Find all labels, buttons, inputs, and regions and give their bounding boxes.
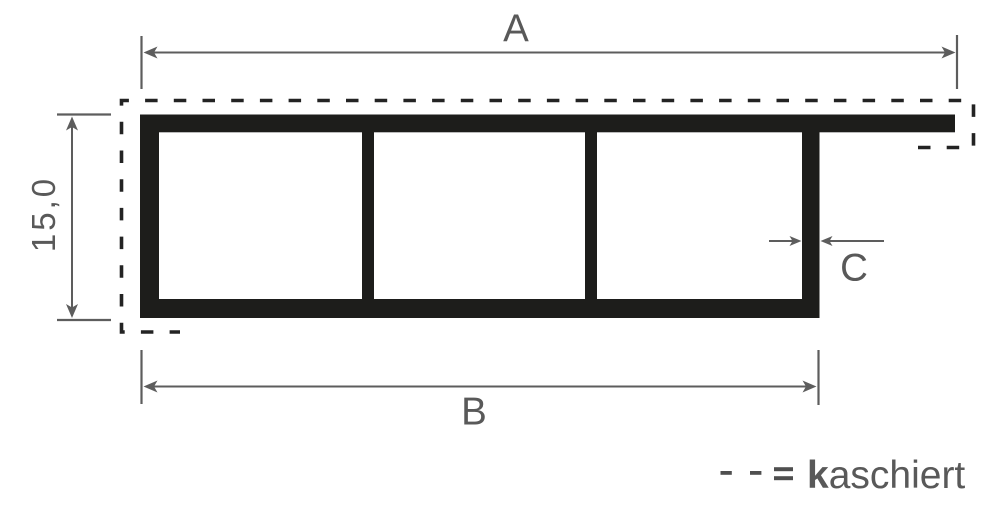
svg-text:kaschiert: kaschiert bbox=[807, 454, 965, 497]
svg-text:15,0: 15,0 bbox=[25, 176, 62, 252]
svg-text:B: B bbox=[461, 391, 487, 434]
svg-text:C: C bbox=[840, 247, 868, 290]
svg-text:A: A bbox=[503, 8, 529, 51]
